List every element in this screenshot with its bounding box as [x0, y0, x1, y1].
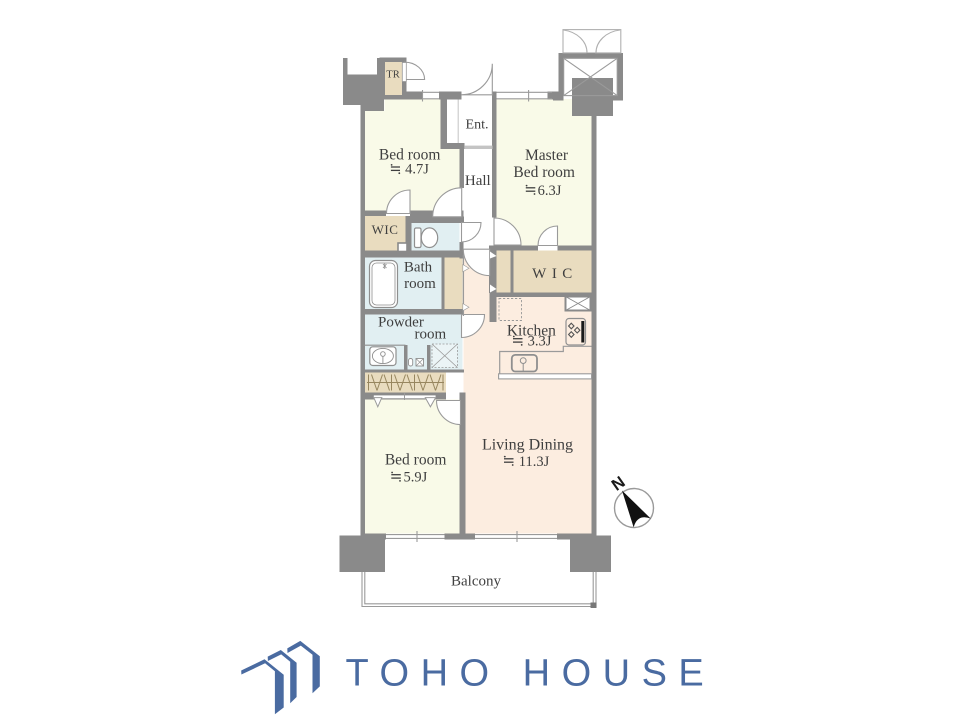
svg-text:Master: Master: [525, 147, 569, 164]
svg-text:TOHO HOUSE: TOHO HOUSE: [346, 653, 716, 695]
svg-text:room: room: [414, 327, 446, 343]
svg-text:Living Dining: Living Dining: [482, 436, 573, 453]
svg-text:4.7J: 4.7J: [405, 162, 429, 178]
svg-text:room: room: [404, 276, 436, 292]
svg-text:11.3J: 11.3J: [519, 454, 550, 470]
svg-text:5.9J: 5.9J: [404, 470, 428, 486]
svg-text:Balcony: Balcony: [451, 574, 501, 590]
svg-text:WIC: WIC: [372, 222, 399, 237]
svg-text:Bath: Bath: [404, 260, 433, 276]
svg-text:3.3J: 3.3J: [528, 334, 552, 350]
svg-text:WIC: WIC: [532, 266, 578, 282]
svg-text:6.3J: 6.3J: [538, 183, 562, 199]
svg-text:Ent.: Ent.: [466, 118, 489, 133]
svg-text:Bed room: Bed room: [513, 164, 575, 181]
svg-text:Bed room: Bed room: [385, 452, 447, 469]
svg-text:TR: TR: [386, 70, 399, 81]
svg-text:Hall: Hall: [465, 173, 491, 189]
